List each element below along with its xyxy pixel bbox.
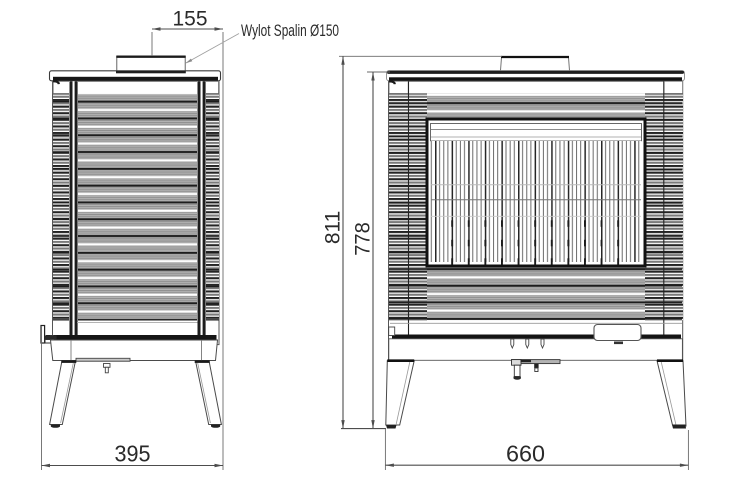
svg-text:155: 155 [173,8,208,31]
svg-text:811: 811 [322,211,345,245]
svg-text:395: 395 [115,441,151,467]
svg-text:778: 778 [352,222,375,256]
svg-text:660: 660 [506,441,545,467]
svg-text:Wylot Spalin Ø150: Wylot Spalin Ø150 [241,21,339,40]
